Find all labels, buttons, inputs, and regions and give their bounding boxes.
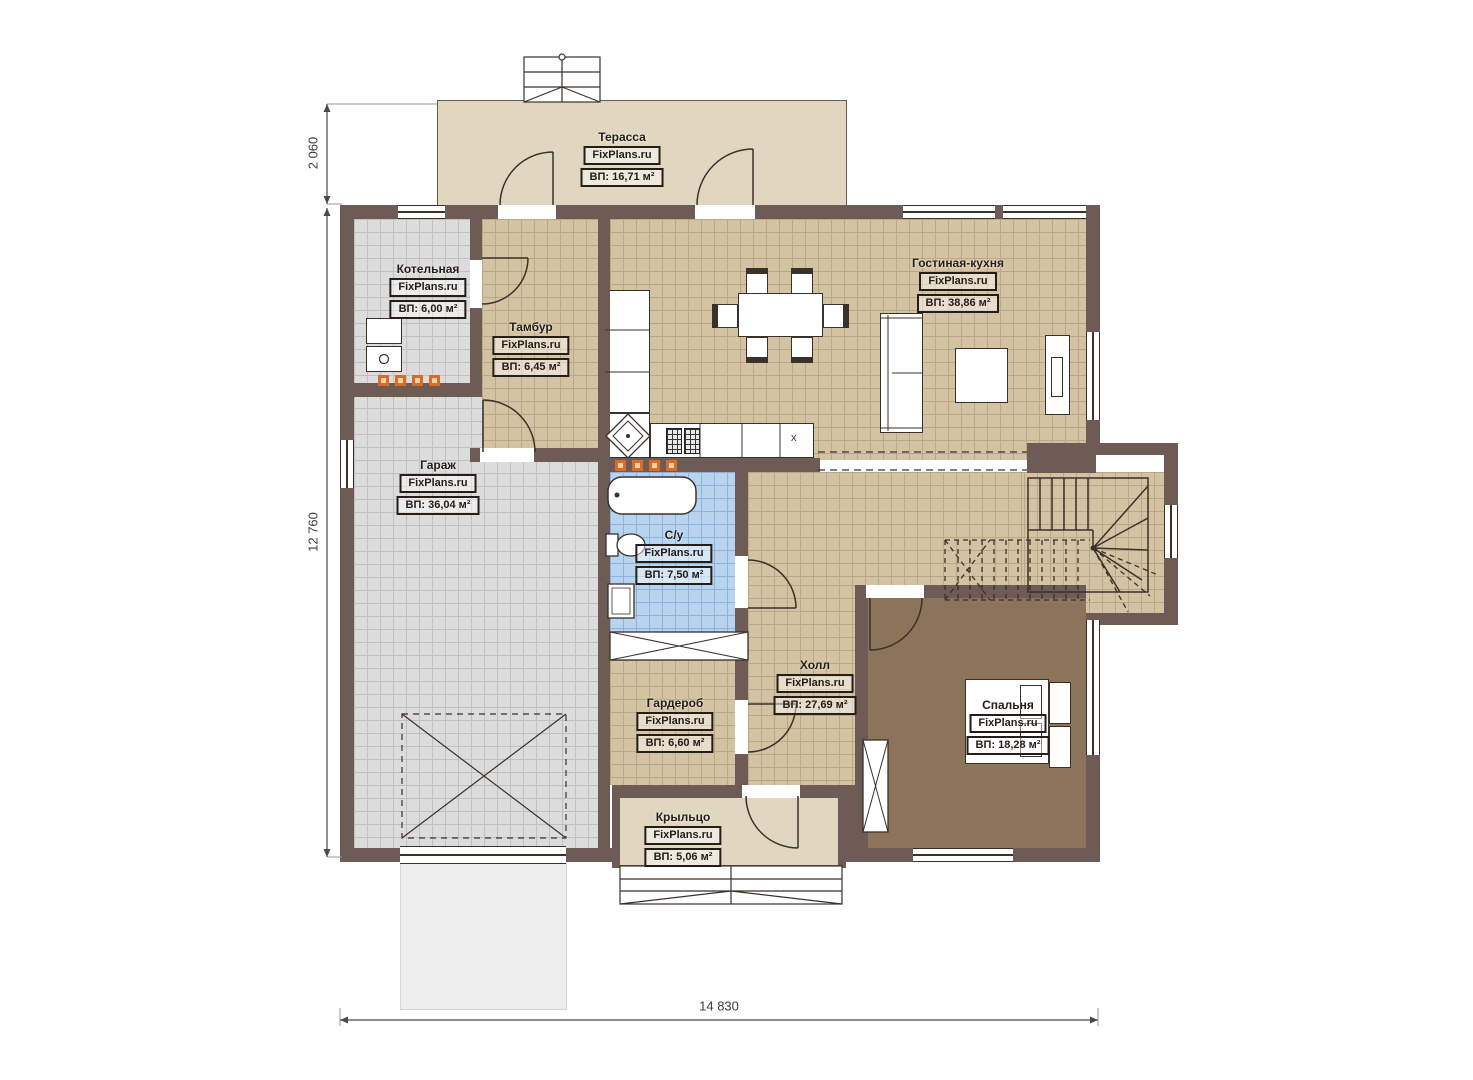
stove-burners: [666, 428, 682, 454]
counter-x-mark: x: [791, 432, 797, 444]
dining-chair: [746, 337, 768, 363]
wall: [1027, 443, 1178, 455]
room-area: ВП: 7,50 м²: [636, 566, 713, 585]
window: [340, 440, 354, 488]
room-name: Гараж: [420, 458, 456, 472]
watermark: FixPlans.ru: [644, 826, 721, 845]
wall: [845, 798, 855, 848]
wall: [612, 785, 855, 798]
chair-back: [713, 305, 718, 327]
window: [903, 205, 995, 219]
garage-gate: [400, 846, 566, 864]
floor-convector: [666, 460, 677, 471]
dining-chair: [823, 304, 849, 328]
chair-back: [843, 305, 848, 327]
room-area: ВП: 27,69 м²: [774, 696, 857, 715]
dining-chair: [791, 268, 813, 294]
kitchen-tall-cabinet: [605, 290, 650, 413]
window: [1164, 505, 1178, 558]
room-label-boiler: Котельная FixPlans.ru ВП: 6,00 м²: [389, 262, 466, 319]
dining-chair: [746, 268, 768, 294]
watermark: FixPlans.ru: [636, 712, 713, 731]
wall: [598, 219, 610, 862]
door-opening: [480, 448, 534, 462]
watermark: FixPlans.ru: [583, 146, 660, 165]
room-name: Холл: [800, 658, 830, 672]
chair-back: [747, 269, 767, 274]
room-name: Крыльцо: [656, 810, 711, 824]
watermark: FixPlans.ru: [969, 714, 1046, 733]
floor-convector: [615, 460, 626, 471]
dimension-left: 12 760: [306, 512, 321, 552]
watermark: FixPlans.ru: [389, 278, 466, 297]
water-heater: [366, 346, 402, 372]
dimension-top-left: 2 060: [306, 137, 321, 170]
room-name: Спальня: [982, 698, 1034, 712]
window: [913, 848, 1013, 862]
watermark: FixPlans.ru: [399, 474, 476, 493]
room-label-porch: Крыльцо FixPlans.ru ВП: 5,06 м²: [644, 810, 721, 867]
door-opening: [866, 585, 924, 598]
room-area: ВП: 36,04 м²: [397, 496, 480, 515]
door-opening: [742, 785, 800, 798]
window: [1086, 620, 1100, 755]
wall: [470, 219, 482, 397]
room-name: Котельная: [397, 262, 460, 276]
room-label-terrace: Терасса FixPlans.ru ВП: 16,71 м²: [581, 130, 664, 187]
watermark: FixPlans.ru: [492, 336, 569, 355]
floor-plan-canvas: x: [0, 0, 1473, 1080]
door-opening: [735, 700, 748, 754]
room-area: ВП: 38,86 м²: [917, 294, 1000, 313]
room-name: С/у: [665, 528, 684, 542]
room-label-bathroom: С/у FixPlans.ru ВП: 7,50 м²: [635, 528, 712, 585]
wall: [612, 798, 620, 868]
floor-convector: [429, 375, 440, 386]
room-area: ВП: 6,45 м²: [493, 358, 570, 377]
floor-convector: [412, 375, 423, 386]
room-area: ВП: 6,00 м²: [390, 300, 467, 319]
wall: [855, 598, 868, 848]
door-opening: [735, 556, 748, 608]
boiler-unit: [366, 318, 402, 344]
nightstand: [1049, 726, 1071, 768]
room-name: Тамбур: [509, 320, 553, 334]
chair-back: [792, 269, 812, 274]
nightstand: [1049, 682, 1071, 724]
stove-burners: [684, 428, 700, 454]
room-area: ВП: 16,71 м²: [581, 168, 664, 187]
room-label-tambour: Тамбур FixPlans.ru ВП: 6,45 м²: [492, 320, 569, 377]
kitchen-corner-cabinet: [605, 413, 650, 458]
watermark: FixPlans.ru: [919, 272, 996, 291]
watermark: FixPlans.ru: [635, 544, 712, 563]
room-name: Терасса: [598, 130, 646, 144]
room-label-living-kitchen: Гостиная-кухня FixPlans.ru ВП: 38,86 м²: [912, 256, 1004, 313]
dining-chair: [712, 304, 738, 328]
floor-convector: [378, 375, 389, 386]
terrace-steps: [524, 54, 600, 102]
room-area: ВП: 6,60 м²: [637, 734, 714, 753]
dimension-bottom: 14 830: [699, 999, 739, 1014]
room-label-bedroom: Спальня FixPlans.ru ВП: 18,28 м²: [967, 698, 1050, 755]
chair-back: [747, 357, 767, 362]
room-label-wardrobe: Гардероб FixPlans.ru ВП: 6,60 м²: [636, 696, 713, 753]
window: [1086, 332, 1100, 420]
dining-chair: [791, 337, 813, 363]
tv-panel: [1051, 357, 1063, 397]
room-area: ВП: 5,06 м²: [645, 848, 722, 867]
dining-table: [738, 293, 823, 337]
window: [398, 205, 445, 219]
door-opening: [498, 205, 556, 219]
room-label-hall: Холл FixPlans.ru ВП: 27,69 м²: [774, 658, 857, 715]
room-name: Гардероб: [647, 696, 704, 710]
chair-back: [792, 357, 812, 362]
door-opening: [470, 260, 482, 308]
floor-convector: [649, 460, 660, 471]
window: [1003, 205, 1086, 219]
room-label-garage: Гараж FixPlans.ru ВП: 36,04 м²: [397, 458, 480, 515]
sofa: [880, 313, 923, 433]
driveway: [400, 862, 567, 1010]
room-name: Гостиная-кухня: [912, 256, 1004, 270]
floor-convector: [395, 375, 406, 386]
porch-steps: [620, 866, 842, 904]
built-in-cabinet: [610, 632, 748, 660]
door-opening: [695, 205, 755, 219]
floor-convector: [632, 460, 643, 471]
coffee-table: [955, 348, 1008, 403]
room-area: ВП: 18,28 м²: [967, 736, 1050, 755]
wall: [340, 205, 354, 862]
watermark: FixPlans.ru: [776, 674, 853, 693]
wall: [1027, 455, 1096, 473]
